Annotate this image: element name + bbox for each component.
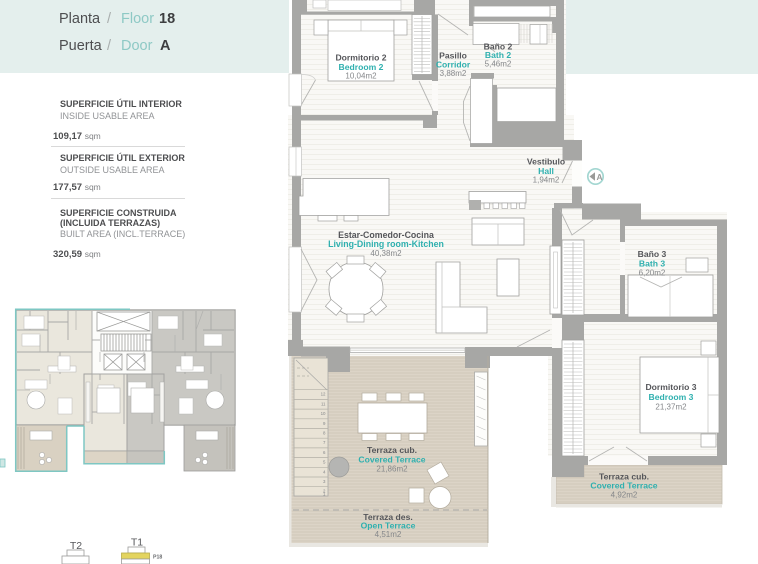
- svg-text:21,86m2: 21,86m2: [376, 464, 408, 473]
- svg-text:3,88m2: 3,88m2: [440, 69, 467, 78]
- svg-text:Dormitorio 3: Dormitorio 3: [645, 382, 696, 392]
- svg-text:10: 10: [321, 411, 326, 416]
- svg-text:Bath 2: Bath 2: [485, 50, 511, 60]
- svg-text:12: 12: [321, 392, 326, 397]
- svg-text:10,04m2: 10,04m2: [345, 72, 377, 81]
- svg-text:Corridor: Corridor: [436, 59, 471, 69]
- svg-text:Open Terrace: Open Terrace: [361, 520, 416, 530]
- svg-text:1,94m2: 1,94m2: [533, 176, 560, 185]
- svg-text:P18: P18: [153, 555, 162, 561]
- svg-text:21,37m2: 21,37m2: [655, 402, 687, 411]
- svg-text:Covered Terrace: Covered Terrace: [358, 454, 425, 464]
- svg-text:Bath 3: Bath 3: [639, 258, 665, 268]
- svg-text:Bedroom 2: Bedroom 2: [339, 62, 384, 72]
- svg-text:Bedroom 3: Bedroom 3: [649, 392, 694, 402]
- svg-text:4,51m2: 4,51m2: [375, 530, 402, 539]
- svg-text:5,46m2: 5,46m2: [485, 60, 512, 69]
- svg-text:Covered Terrace: Covered Terrace: [590, 481, 657, 491]
- svg-text:Living-Dining room-Kitchen: Living-Dining room-Kitchen: [328, 239, 444, 249]
- svg-text:40,38m2: 40,38m2: [370, 249, 402, 258]
- svg-text:11: 11: [321, 401, 326, 406]
- svg-text:4,92m2: 4,92m2: [611, 491, 638, 500]
- svg-text:Hall: Hall: [538, 166, 554, 176]
- svg-text:A: A: [596, 172, 602, 182]
- svg-text:6,20m2: 6,20m2: [639, 268, 666, 277]
